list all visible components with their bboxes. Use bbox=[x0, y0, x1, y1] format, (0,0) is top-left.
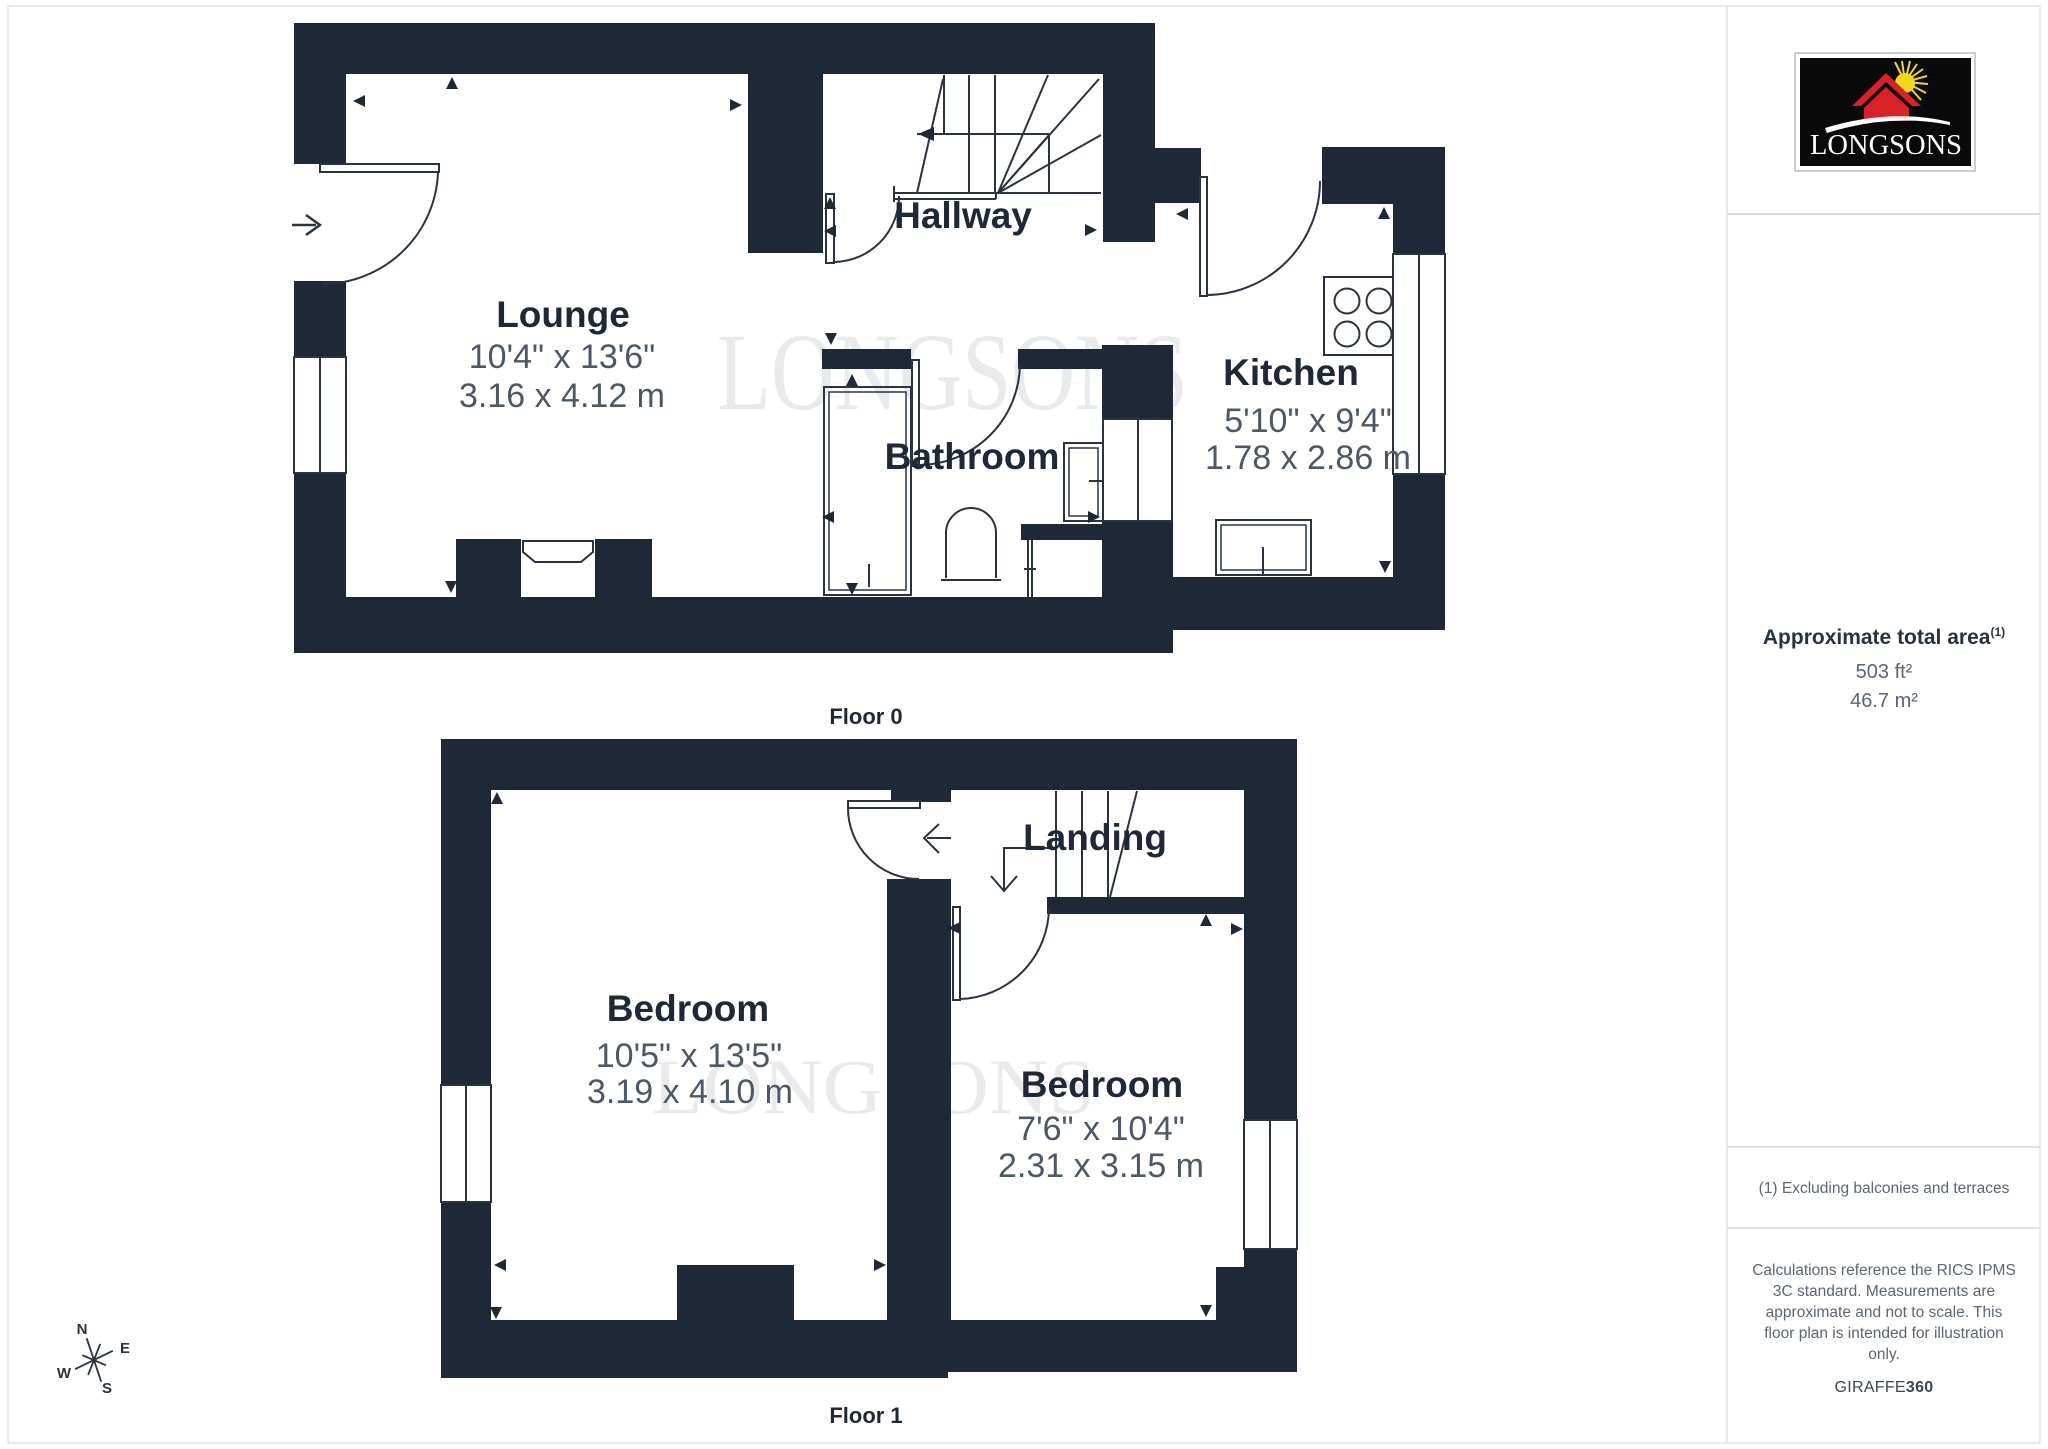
svg-text:Floor 0: Floor 0 bbox=[829, 704, 902, 729]
svg-text:N: N bbox=[77, 1321, 88, 1338]
svg-text:2.31 x 3.15 m: 2.31 x 3.15 m bbox=[998, 1147, 1204, 1185]
svg-text:Landing: Landing bbox=[1023, 817, 1167, 858]
svg-text:3.19 x 4.10 m: 3.19 x 4.10 m bbox=[587, 1073, 793, 1111]
svg-text:7'6" x 10'4": 7'6" x 10'4" bbox=[1017, 1110, 1185, 1148]
svg-text:Bathroom: Bathroom bbox=[885, 436, 1060, 477]
svg-text:E: E bbox=[120, 1340, 130, 1357]
svg-text:GIRAFFE360: GIRAFFE360 bbox=[1834, 1379, 1933, 1396]
svg-text:LONGSONS: LONGSONS bbox=[1810, 129, 1962, 161]
svg-text:S: S bbox=[102, 1380, 112, 1397]
svg-text:W: W bbox=[57, 1365, 72, 1382]
svg-text:Bedroom: Bedroom bbox=[1021, 1064, 1183, 1105]
svg-text:3.16 x 4.12 m: 3.16 x 4.12 m bbox=[459, 377, 665, 415]
svg-text:floor plan is intended for ill: floor plan is intended for illustration bbox=[1764, 1325, 2004, 1342]
svg-text:503 ft²: 503 ft² bbox=[1856, 661, 1913, 683]
svg-text:10'5" x 13'5": 10'5" x 13'5" bbox=[596, 1037, 782, 1075]
svg-text:Floor 1: Floor 1 bbox=[829, 1403, 902, 1428]
svg-text:1.78 x 2.86 m: 1.78 x 2.86 m bbox=[1205, 439, 1411, 477]
svg-text:46.7 m²: 46.7 m² bbox=[1850, 690, 1918, 712]
svg-text:Approximate total area(1): Approximate total area(1) bbox=[1763, 625, 2005, 649]
svg-text:3C standard. Measurements are: 3C standard. Measurements are bbox=[1773, 1283, 1995, 1300]
svg-text:Hallway: Hallway bbox=[894, 195, 1032, 236]
svg-text:approximate and not to scale.: approximate and not to scale. This bbox=[1766, 1304, 2003, 1321]
svg-text:10'4" x 13'6": 10'4" x 13'6" bbox=[469, 338, 655, 376]
svg-text:Calculations reference the RIC: Calculations reference the RICS IPMS bbox=[1752, 1262, 2016, 1279]
svg-text:Bedroom: Bedroom bbox=[607, 988, 769, 1029]
svg-text:(1) Excluding balconies and te: (1) Excluding balconies and terraces bbox=[1759, 1180, 2010, 1197]
svg-text:5'10" x 9'4": 5'10" x 9'4" bbox=[1224, 402, 1392, 440]
svg-text:only.: only. bbox=[1868, 1346, 1900, 1363]
svg-text:Lounge: Lounge bbox=[496, 294, 630, 335]
svg-text:Kitchen: Kitchen bbox=[1223, 352, 1359, 393]
